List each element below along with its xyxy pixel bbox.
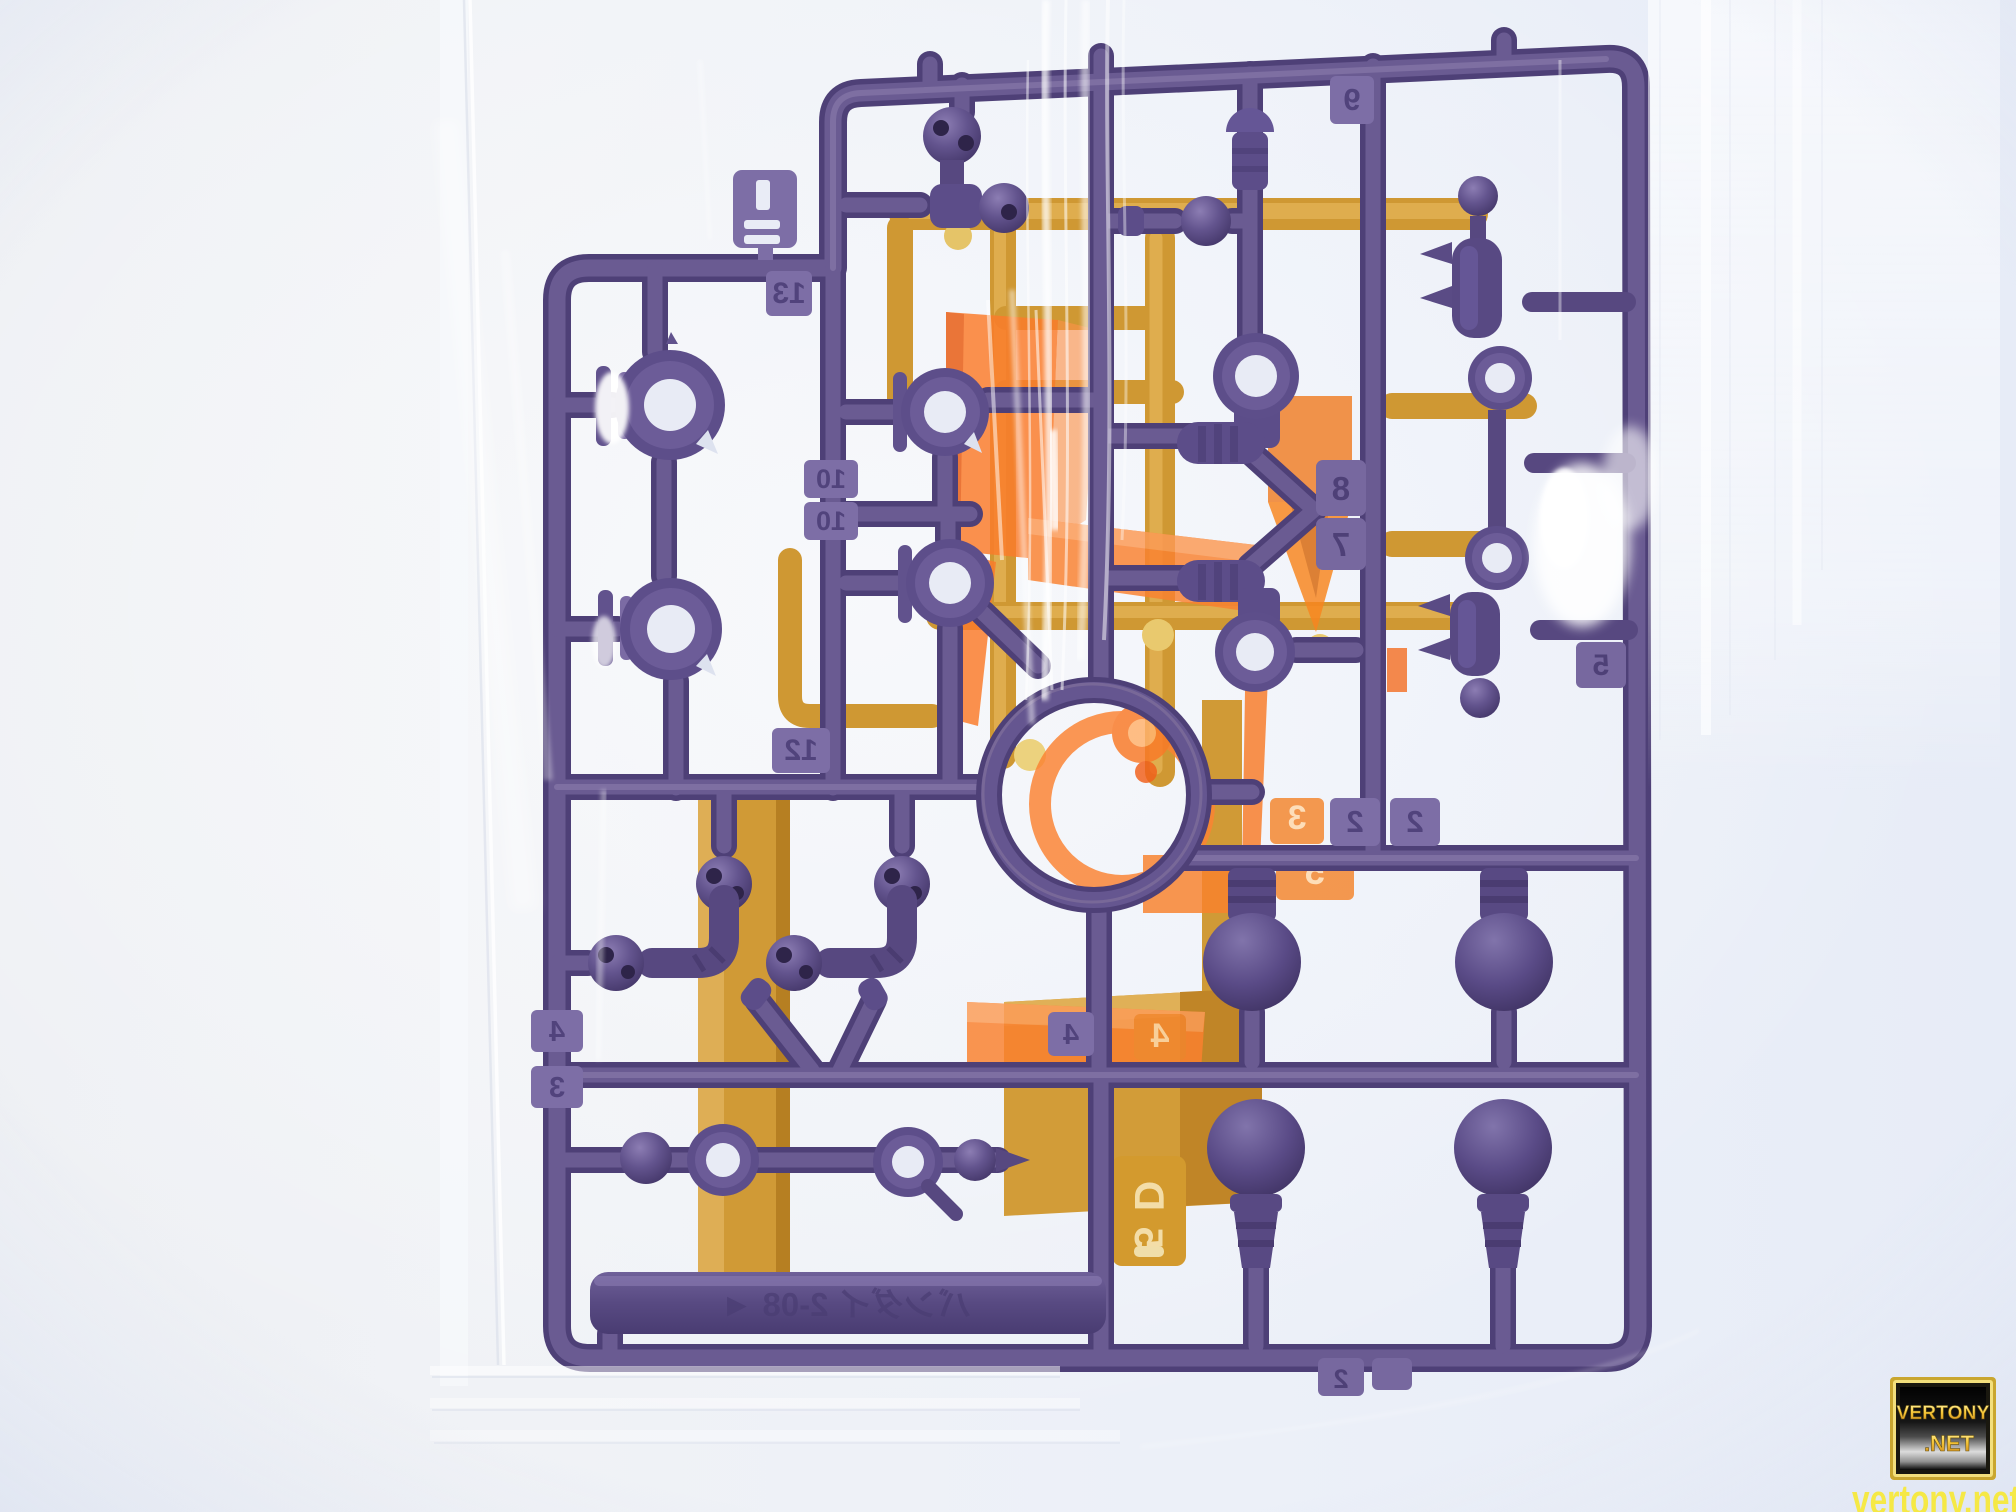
svg-text:vertony.net: vertony.net bbox=[1852, 1476, 2016, 1512]
svg-text:.NET: .NET bbox=[1924, 1431, 1975, 1456]
svg-text:VERTONY: VERTONY bbox=[1897, 1403, 1990, 1424]
